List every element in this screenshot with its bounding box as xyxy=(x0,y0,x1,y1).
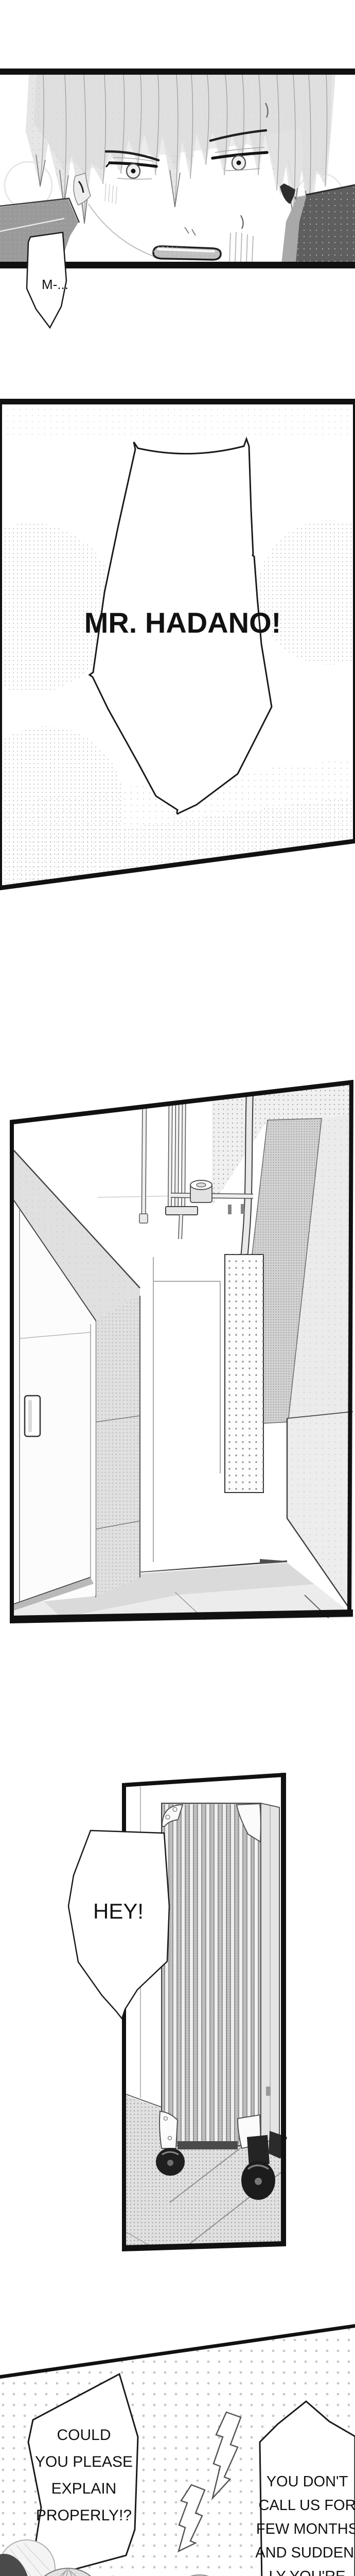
svg-text:YOU PLEASE: YOU PLEASE xyxy=(35,2453,133,2470)
svg-text:COULD: COULD xyxy=(57,2427,111,2444)
svg-text:YOU DON'T: YOU DON'T xyxy=(267,2473,348,2490)
svg-text:EXPLAIN: EXPLAIN xyxy=(51,2480,117,2497)
svg-text:LY YOU'RE: LY YOU'RE xyxy=(269,2568,346,2576)
svg-text:MR. HADANO!: MR. HADANO! xyxy=(84,606,281,639)
svg-text:HEY!: HEY! xyxy=(93,1899,144,1923)
svg-text:CALL US FOR: CALL US FOR xyxy=(258,2497,355,2514)
svg-text:M-...: M-... xyxy=(42,277,68,292)
svg-text:FEW MONTHS: FEW MONTHS xyxy=(256,2521,355,2537)
svg-text:AND SUDDEN-: AND SUDDEN- xyxy=(255,2545,355,2561)
svg-text:PROPERLY!?: PROPERLY!? xyxy=(36,2507,132,2524)
